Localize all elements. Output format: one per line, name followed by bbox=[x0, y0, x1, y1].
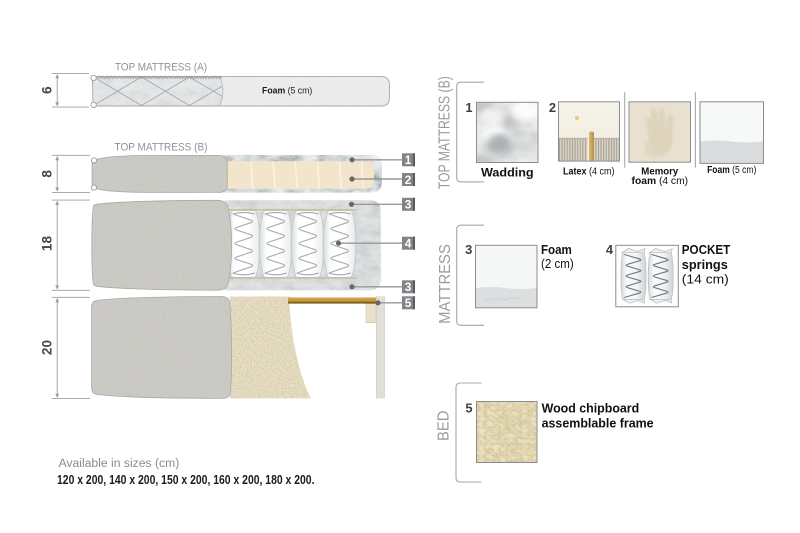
svg-text:120 x 200, 140 x 200, 150 x 20: 120 x 200, 140 x 200, 150 x 200, 160 x 2… bbox=[57, 472, 315, 487]
svg-text:4: 4 bbox=[405, 237, 412, 251]
svg-text:3: 3 bbox=[405, 198, 412, 212]
svg-text:MATTRESS: MATTRESS bbox=[437, 244, 454, 324]
svg-text:TOP MATTRESS (A): TOP MATTRESS (A) bbox=[115, 62, 207, 74]
svg-text:TOP MATTRESS (B): TOP MATTRESS (B) bbox=[437, 76, 454, 189]
svg-text:5: 5 bbox=[465, 400, 472, 415]
svg-text:3: 3 bbox=[465, 242, 472, 257]
svg-text:2: 2 bbox=[549, 100, 556, 115]
svg-text:5: 5 bbox=[405, 296, 412, 310]
svg-text:Latex (4 cm): Latex (4 cm) bbox=[563, 167, 615, 178]
svg-text:foam (4 cm): foam (4 cm) bbox=[632, 176, 689, 187]
svg-text:Foam (5 cm): Foam (5 cm) bbox=[262, 86, 312, 97]
svg-text:3: 3 bbox=[405, 280, 412, 294]
svg-text:BED: BED bbox=[436, 411, 453, 441]
svg-text:Wood chipboard: Wood chipboard bbox=[542, 400, 640, 415]
svg-text:4: 4 bbox=[606, 242, 614, 257]
svg-text:(2 cm): (2 cm) bbox=[541, 257, 574, 271]
svg-text:Wadding: Wadding bbox=[481, 166, 534, 180]
svg-text:POCKET: POCKET bbox=[682, 242, 731, 257]
svg-text:2: 2 bbox=[405, 173, 412, 187]
svg-text:Available in sizes (cm): Available in sizes (cm) bbox=[59, 458, 180, 470]
svg-text:6: 6 bbox=[39, 86, 54, 94]
svg-text:20: 20 bbox=[39, 340, 54, 355]
svg-text:Foam (5 cm): Foam (5 cm) bbox=[707, 165, 756, 176]
svg-text:8: 8 bbox=[39, 170, 54, 178]
svg-text:18: 18 bbox=[39, 236, 54, 252]
svg-text:assemblable frame: assemblable frame bbox=[542, 416, 654, 431]
svg-text:TOP MATTRESS (B): TOP MATTRESS (B) bbox=[115, 141, 208, 153]
svg-text:springs: springs bbox=[682, 257, 728, 272]
svg-text:Foam: Foam bbox=[541, 243, 572, 257]
svg-text:1: 1 bbox=[465, 100, 472, 115]
svg-text:(14 cm): (14 cm) bbox=[682, 272, 729, 286]
svg-text:1: 1 bbox=[405, 153, 412, 167]
